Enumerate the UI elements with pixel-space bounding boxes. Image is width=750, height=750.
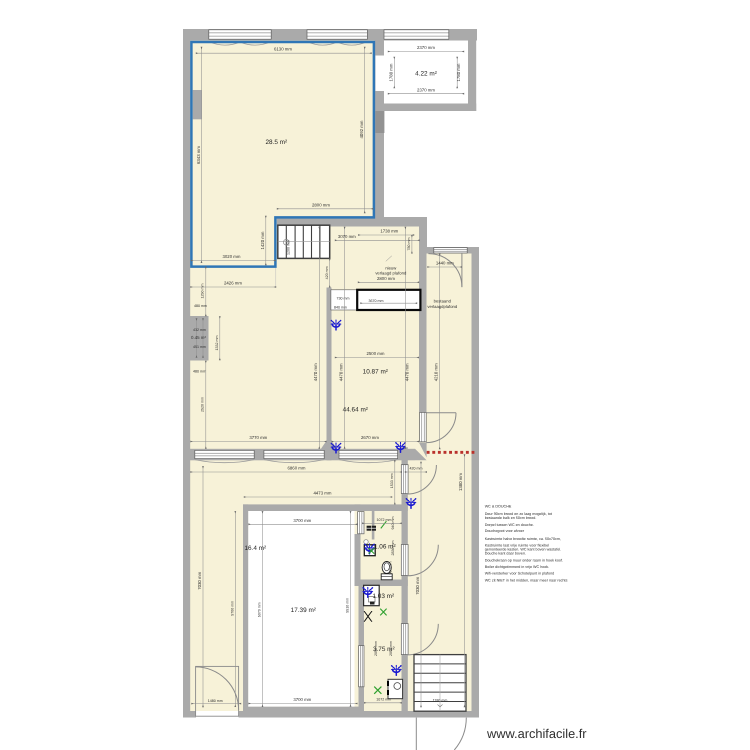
svg-text:28.5 m²: 28.5 m² xyxy=(265,139,287,146)
svg-text:2520 mm: 2520 mm xyxy=(201,397,205,412)
svg-text:2370 mm: 2370 mm xyxy=(417,45,435,50)
svg-text:1.06 m²: 1.06 m² xyxy=(374,543,396,550)
svg-text:1332 mm: 1332 mm xyxy=(215,336,219,351)
svg-text:Wifi-versterker voor Schotelpu: Wifi-versterker voor Schotelpunt in plaf… xyxy=(485,572,554,576)
svg-text:1380 mm: 1380 mm xyxy=(458,473,463,491)
svg-text:730 mm: 730 mm xyxy=(337,297,350,301)
svg-text:1738 mm: 1738 mm xyxy=(380,229,398,234)
svg-text:451 mm: 451 mm xyxy=(193,345,206,349)
svg-text:bestaand: bestaand xyxy=(434,298,452,303)
svg-text:1072 mm: 1072 mm xyxy=(376,697,391,701)
svg-text:2670 mm: 2670 mm xyxy=(361,435,379,440)
svg-text:1180 mm: 1180 mm xyxy=(433,699,448,703)
svg-text:1440 mm: 1440 mm xyxy=(436,261,454,266)
svg-text:900 mm: 900 mm xyxy=(388,562,392,575)
svg-text:verlaagd plafond: verlaagd plafond xyxy=(375,271,407,276)
svg-text:2370 mm: 2370 mm xyxy=(417,87,435,92)
svg-text:10.87 m²: 10.87 m² xyxy=(363,368,388,375)
svg-text:2426 mm: 2426 mm xyxy=(224,281,242,286)
svg-text:3070 mm: 3070 mm xyxy=(338,234,356,239)
svg-text:1780 mm: 1780 mm xyxy=(456,63,461,81)
svg-text:480 mm: 480 mm xyxy=(193,370,206,374)
svg-text:1780 mm: 1780 mm xyxy=(389,63,394,81)
svg-text:Douchekraan op muur onder raam: Douchekraan op muur onder raam in hoek k… xyxy=(485,558,563,562)
svg-text:7030 mm: 7030 mm xyxy=(197,571,202,589)
svg-text:6860 mm: 6860 mm xyxy=(288,466,306,471)
svg-text:17.39 m²: 17.39 m² xyxy=(291,607,316,614)
svg-text:940 mm: 940 mm xyxy=(391,517,395,530)
svg-text:840 mm: 840 mm xyxy=(334,305,347,309)
svg-text:1072 mm: 1072 mm xyxy=(377,518,392,522)
svg-text:1250 mm: 1250 mm xyxy=(201,284,205,299)
svg-text:7030 mm: 7030 mm xyxy=(415,576,420,594)
svg-text:2800 mm: 2800 mm xyxy=(377,276,395,281)
svg-text:Douche kant daar boven.: Douche kant daar boven. xyxy=(485,552,526,556)
svg-text:Dorpel tussen WC en douche.: Dorpel tussen WC en douche. xyxy=(485,523,534,527)
svg-text:3020 mm: 3020 mm xyxy=(223,254,241,259)
svg-text:420 mm: 420 mm xyxy=(410,466,423,470)
svg-text:420 mm: 420 mm xyxy=(325,266,329,279)
svg-text:1.03 m²: 1.03 m² xyxy=(372,593,394,600)
svg-text:verlaagdplafond: verlaagdplafond xyxy=(427,304,457,309)
svg-text:3670 mm: 3670 mm xyxy=(369,299,384,303)
svg-text:4470 mm: 4470 mm xyxy=(339,363,344,381)
svg-text:1533 mm: 1533 mm xyxy=(390,473,394,488)
svg-text:780 mm: 780 mm xyxy=(407,238,411,251)
svg-text:1480 mm: 1480 mm xyxy=(208,699,223,703)
svg-text:6343 mm: 6343 mm xyxy=(196,146,201,164)
svg-text:WC & DOUCHE: WC & DOUCHE xyxy=(485,505,512,509)
svg-text:480 mm: 480 mm xyxy=(194,304,207,308)
svg-text:1420 mm: 1420 mm xyxy=(260,231,265,249)
svg-text:5700 mm: 5700 mm xyxy=(230,601,234,616)
svg-text:4210 mm: 4210 mm xyxy=(433,363,438,381)
svg-text:4.22 m²: 4.22 m² xyxy=(415,71,437,78)
svg-text:bestaande balk en 50cm breed.: bestaande balk en 50cm breed. xyxy=(485,516,537,520)
svg-text:www.archifacile.fr: www.archifacile.fr xyxy=(486,726,587,741)
svg-text:1200 mm: 1200 mm xyxy=(287,240,291,255)
svg-text:5070 mm: 5070 mm xyxy=(258,602,262,617)
svg-text:3700 mm: 3700 mm xyxy=(293,697,311,702)
svg-text:Boiler dichtgetimmerd in vrije: Boiler dichtgetimmerd in vrije WC hoek. xyxy=(485,565,550,569)
svg-text:3.75 m²: 3.75 m² xyxy=(373,646,395,653)
svg-text:4470 mm: 4470 mm xyxy=(404,363,409,381)
svg-text:4092 mm: 4092 mm xyxy=(359,120,364,138)
svg-text:WC zit NIET in het midden, maa: WC zit NIET in het midden, maar meer naa… xyxy=(485,578,568,582)
svg-text:3770 mm: 3770 mm xyxy=(249,435,267,440)
svg-text:0.45 m²: 0.45 m² xyxy=(191,335,206,340)
svg-text:3700 mm: 3700 mm xyxy=(293,518,311,523)
svg-text:4473 mm: 4473 mm xyxy=(314,491,332,496)
svg-text:432 mm: 432 mm xyxy=(193,328,206,332)
svg-text:2800 mm: 2800 mm xyxy=(312,202,330,207)
svg-text:44.64 m²: 44.64 m² xyxy=(343,406,368,413)
svg-text:6130 mm: 6130 mm xyxy=(274,47,292,52)
svg-text:16.4 m²: 16.4 m² xyxy=(244,545,266,552)
svg-text:Douchegoot voor afvoer: Douchegoot voor afvoer xyxy=(485,529,525,533)
svg-text:4470 mm: 4470 mm xyxy=(313,363,318,381)
svg-text:2500 mm: 2500 mm xyxy=(367,351,385,356)
svg-text:Kastruimte halve breedte ruimt: Kastruimte halve breedte ruimte, ca. 50x… xyxy=(485,537,561,541)
svg-text:5510 mm: 5510 mm xyxy=(346,598,350,613)
